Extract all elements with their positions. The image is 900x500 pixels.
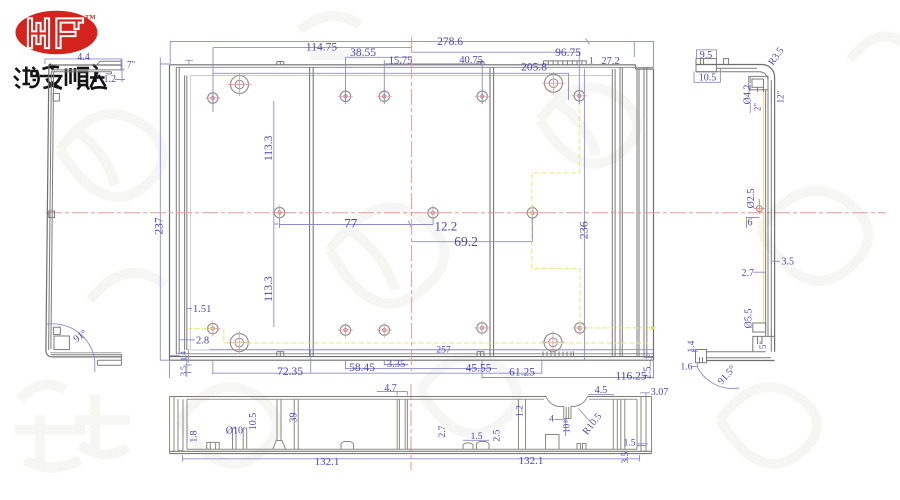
svg-text:257: 257: [436, 346, 451, 356]
svg-text:91.5°: 91.5°: [716, 364, 739, 387]
svg-text:72.35: 72.35: [277, 366, 303, 378]
svg-text:27.2: 27.2: [601, 56, 619, 67]
svg-text:12.2: 12.2: [435, 218, 458, 233]
svg-text:236: 236: [577, 221, 591, 239]
svg-text:2.7: 2.7: [438, 425, 448, 437]
svg-text:1: 1: [589, 56, 594, 66]
svg-text:6: 6: [748, 218, 753, 229]
svg-text:4.7: 4.7: [384, 383, 397, 394]
svg-text:R3.5: R3.5: [766, 46, 786, 68]
svg-text:45.55: 45.55: [466, 362, 492, 374]
svg-text:1.4: 1.4: [179, 351, 188, 361]
svg-text:237: 237: [154, 217, 166, 235]
svg-text:1.51: 1.51: [193, 304, 211, 315]
svg-text:Ø10: Ø10: [226, 426, 243, 437]
svg-text:114.75: 114.75: [306, 42, 337, 54]
svg-text:2.8: 2.8: [196, 335, 209, 346]
svg-text:5": 5": [758, 341, 768, 350]
svg-text:278.6: 278.6: [437, 36, 463, 48]
svg-text:4.4: 4.4: [77, 52, 90, 63]
svg-text:113.3: 113.3: [263, 135, 275, 161]
svg-text:4.5: 4.5: [595, 385, 608, 396]
svg-text:4: 4: [549, 415, 554, 425]
svg-text:40.75: 40.75: [459, 55, 483, 66]
svg-text:113.3: 113.3: [263, 276, 275, 302]
svg-text:2.5: 2.5: [643, 367, 654, 380]
svg-text:TM: TM: [85, 14, 95, 21]
svg-text:1.8: 1.8: [190, 430, 200, 442]
svg-text:10.5: 10.5: [699, 72, 717, 83]
svg-text:7": 7": [127, 60, 136, 70]
svg-text:1.4: 1.4: [687, 340, 697, 352]
svg-text:205.8: 205.8: [521, 62, 547, 74]
svg-text:3.5: 3.5: [782, 257, 795, 268]
svg-text:1.6: 1.6: [681, 363, 693, 373]
svg-text:69.2: 69.2: [454, 234, 478, 249]
svg-text:9.5: 9.5: [700, 50, 713, 61]
svg-text:132.1: 132.1: [315, 456, 340, 468]
svg-text:91°: 91°: [72, 328, 90, 345]
svg-text:10: 10: [563, 424, 573, 434]
svg-text:12": 12": [776, 90, 786, 103]
svg-text:Ø5.5: Ø5.5: [744, 309, 755, 329]
svg-text:3.5: 3.5: [621, 452, 631, 464]
svg-text:Ø4.2: Ø4.2: [743, 85, 754, 105]
svg-text:2.5: 2.5: [493, 429, 503, 441]
svg-text:132.1: 132.1: [519, 455, 544, 467]
svg-text:3.5: 3.5: [179, 366, 188, 376]
svg-text:61.25: 61.25: [509, 367, 535, 379]
svg-text:1.5: 1.5: [624, 438, 636, 448]
svg-text:15.75: 15.75: [389, 56, 413, 67]
svg-text:38.55: 38.55: [350, 47, 376, 59]
svg-text:1.2: 1.2: [104, 74, 117, 85]
svg-text:2": 2": [753, 103, 763, 112]
svg-text:2.7: 2.7: [742, 268, 755, 279]
svg-text:1.5: 1.5: [471, 432, 483, 442]
svg-text:3.35: 3.35: [387, 359, 405, 370]
svg-text:Ø2.5: Ø2.5: [746, 189, 757, 209]
svg-text:1.2: 1.2: [516, 405, 526, 417]
svg-text:3.07: 3.07: [651, 387, 669, 398]
svg-text:39: 39: [289, 413, 300, 423]
svg-text:10.5: 10.5: [248, 413, 259, 431]
svg-text:77: 77: [344, 216, 358, 231]
svg-text:96.75: 96.75: [555, 47, 581, 59]
svg-text:58.45: 58.45: [349, 362, 375, 374]
